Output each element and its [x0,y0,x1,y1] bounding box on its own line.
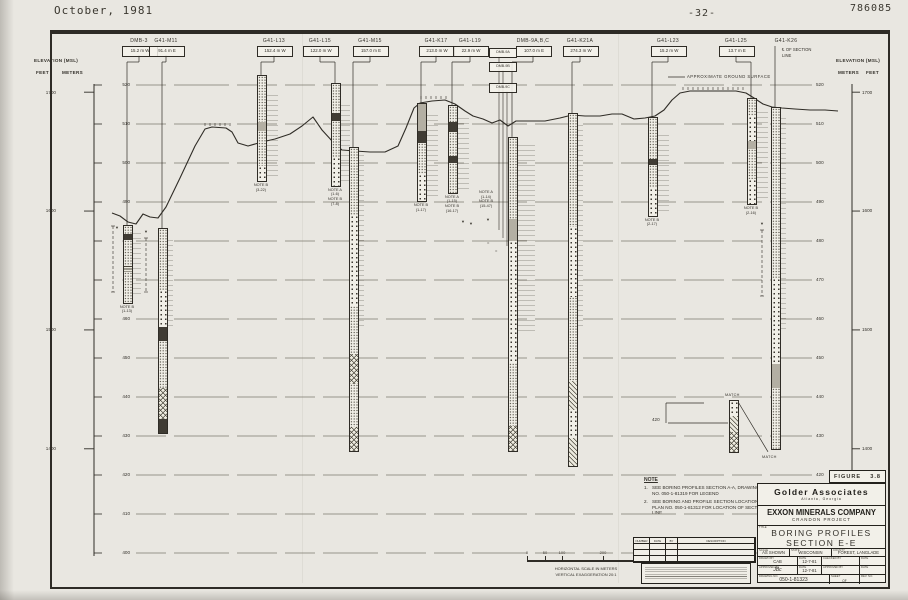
elevation-label-meters-left: 490 [108,199,130,204]
stratum-gy [258,122,266,130]
stratum-st [569,297,577,381]
figure-label: FIGURE [834,474,861,480]
stratum-hh [730,416,738,431]
stratum-dt [748,116,756,141]
elevation-label-meters-left: 500 [108,160,130,165]
stratum-dt [350,215,358,306]
boring-column [508,137,518,452]
centerline-note: ℄ OF SECTIONLINE [782,47,811,58]
water-level-marker: ▼ [469,222,473,226]
stratum-st [258,131,266,167]
elevation-label-meters-left: 410 [108,511,130,516]
boring-column [771,107,781,450]
boring-note: NOTE B(1-13) [105,305,149,314]
stratum-hx [159,388,167,419]
drawing-number-value: 050-1-81323 [758,577,829,583]
elevation-label-meters-left: 400 [108,550,130,555]
stratum-st [124,272,132,303]
boring-column [648,117,658,217]
boring-offset-box: 15.2 m W [651,46,687,57]
stratum-st [748,149,756,178]
stratum-hx [730,432,738,452]
boring-id-label: G41-M11 [136,38,196,44]
boring-annotation-strip [426,115,438,197]
date-value: 12-7-81 [798,568,821,573]
date-label: DATE [861,565,868,569]
elevation-label-feet-right: 1500 [862,327,884,332]
boring-column [747,98,757,205]
boring-column [568,113,578,467]
stratum-st [258,76,266,122]
date-label: DATE [861,556,868,560]
drawing-title-line1: BORING PROFILES [758,528,885,538]
drawing-title-line2: SECTION E-E [758,538,885,548]
match-column [729,400,739,453]
stratum-st [569,114,577,227]
stratum-st [449,163,457,193]
elevation-label-feet-right: 1400 [862,446,884,451]
stratum-st [332,84,340,112]
stratum-dt [418,174,426,201]
stratum-dk [418,131,426,143]
stratum-dt [772,278,780,363]
elevation-label-meters-right: 480 [816,238,838,243]
boring-note: NOTE B(2-16) [729,206,773,215]
client-name: EXXON MINERALS COMPANY [761,508,882,517]
water-level-marker: ▼ [760,222,764,226]
elevation-label-meters-left: 460 [108,316,130,321]
stratum-st [159,229,167,290]
stratum-dk [159,327,167,341]
boring-offset-box: 22.9 m W [453,46,489,57]
boring-annotation-strip [132,233,141,298]
stratum-st [449,106,457,122]
stratum-hh [569,381,577,409]
elevation-label-meters-left: 430 [108,433,130,438]
boring-column [257,75,267,182]
boring-note: NOTE B(2-17) [630,218,674,227]
stratum-dt [569,410,577,438]
stratum-dt [332,157,340,185]
stratum-dt [730,401,738,416]
stratum-gy [418,104,426,131]
figure-number: 3.8 [870,474,881,480]
boring-column [331,83,341,187]
boring-annotation-strip [457,118,469,190]
title-block: FIGURE 3.8 Golder Associates Atlanta, Ge… [757,470,887,583]
boring-offset-box: 107.0 m E [516,46,552,57]
elevation-label-feet-right: 1600 [862,208,884,213]
elevation-label-meters-left: 420 [108,472,130,477]
company-name: Golder Associates [758,487,885,497]
boring-id-label: G41-M15 [340,38,400,44]
elevation-label-feet-right: 1700 [862,90,884,95]
boring-column [448,105,458,194]
elevation-label-meters-right: 520 [816,82,838,87]
stratum-st [772,388,780,449]
stratum-st [159,341,167,388]
stratum-hx [350,427,358,451]
county-value: FOREST, LANGLADE [832,550,885,555]
boring-annotation-strip [517,145,535,335]
state-value: WISCONSIN [790,550,831,555]
boring-note: NOTE A(1-14)NOTE B(15-47) [464,190,508,208]
revision-label: REV. NO. [861,574,873,578]
stratum-dt [569,227,577,297]
stratum-hx [509,426,517,451]
boring-offset-box: 122.0 m W [303,46,339,57]
stratum-gy [748,141,756,149]
elevation-label-meters-left: 440 [108,394,130,399]
checked-label: CHECKED BY [823,556,841,560]
water-level-marker: = [487,241,489,245]
figure-box: FIGURE 3.8 [829,470,886,483]
stratum-st [748,99,756,116]
title-block-main: Golder Associates Atlanta, Georgia EXXON… [757,483,886,583]
boring-column [349,147,359,452]
stratum-dt [748,179,756,204]
boring-note: NOTE B(3-22) [239,183,283,192]
stratum-dt [258,166,266,181]
match-label-bottom: MATCH [762,455,777,459]
drawing-title-row: TITLE BORING PROFILES SECTION E-E [758,525,885,549]
elevation-label-feet-left: 1700 [34,90,56,95]
stratum-st [509,363,517,426]
scanned-drawing-page: October, 1981 -32- 786085 ELEVATION (MSL… [0,0,908,600]
title-label: TITLE [759,525,767,529]
elevation-label-meters-left: 520 [108,82,130,87]
elevation-label-meters-right: 430 [816,433,838,438]
boring-id-label: G41-K26 [756,38,816,44]
elevation-label-meters-right: 490 [816,199,838,204]
ground-surface-label: APPROXIMATE GROUND SURFACE [687,74,771,79]
stratum-st [350,306,358,354]
boring-column [158,228,168,434]
stratum-st [449,132,457,156]
approved-label: APPROVED BY [823,565,843,569]
stratum-st [772,108,780,279]
stratum-st [350,148,358,215]
drawing-number-row: DRAWING NO.050-1-81323 SHEETOF REV. NO. [758,574,885,584]
elevation-label-meters-right: 470 [816,277,838,282]
elevation-label-feet-left: 1400 [34,446,56,451]
proprietary-note-box [641,563,751,584]
elevation-label-feet-left: 1600 [34,208,56,213]
boring-offset-box: 274.3 m W [563,46,599,57]
stratum-st [124,240,132,266]
water-level-marker: ▼ [461,220,465,224]
sheet-of-label: OF [830,579,859,583]
elevation-label-meters-left: 510 [108,121,130,126]
stratum-gy [509,219,517,241]
boring-sub-label: DMB-9C [489,83,517,93]
elevation-label-meters-right: 440 [816,394,838,399]
water-level-marker: ▼ [144,230,148,234]
stratum-dt [509,241,517,363]
micro-print [645,567,747,581]
boring-column [123,225,133,304]
stratum-dk [332,113,340,121]
stratum-dk [449,122,457,132]
boring-annotation-strip [657,135,669,212]
stratum-dk [449,156,457,163]
stratum-dt [159,290,167,327]
stratum-st [332,121,340,158]
boring-sub-label: DMB-9B [489,62,517,72]
stratum-st [350,384,358,426]
boring-id-label: G41-K21A [550,38,610,44]
water-level-marker: ▼ [486,218,490,222]
boring-column [417,103,427,202]
boring-annotation-strip [756,112,768,200]
stratum-gy [772,364,780,388]
company-row: Golder Associates Atlanta, Georgia [758,484,885,506]
stratum-st [418,143,426,174]
sheet-label: SHEET [831,574,840,578]
date-value: 12-7-81 [798,559,821,564]
water-level-marker: = [495,249,497,253]
boring-sub-label: DMB-9A [489,48,517,58]
water-level-marker: ▼ [115,226,119,230]
elevation-label-meters-right: 460 [816,316,838,321]
project-name: CRANDON PROJECT [758,517,885,522]
elevation-label-meters-right: 510 [816,121,838,126]
stratum-st [124,226,132,234]
boring-offset-box: 91.4 m E [149,46,185,57]
scale-value: AS SHOWN [758,550,789,555]
elevation-label-meters-right: 500 [816,160,838,165]
stratum-hx [350,354,358,384]
elevation-label-feet-left: 1500 [34,327,56,332]
match-elevation-label: 420 [652,417,660,422]
match-label-top: MATCH [725,393,740,397]
boring-offset-box: 13.7 m E [719,46,755,57]
client-row: EXXON MINERALS COMPANY CRANDON PROJECT [758,505,885,526]
stratum-st [649,118,657,159]
stratum-hh [569,438,577,466]
elevation-label-meters-right: 450 [816,355,838,360]
company-location: Atlanta, Georgia [758,497,885,501]
drawn-value: CAB [758,559,797,564]
stratum-dk [159,419,167,433]
elevation-label-meters-left: 450 [108,355,130,360]
approved-signature: JBc [758,567,797,573]
stratum-st [649,165,657,188]
boring-offset-box: 157.0 m E [353,46,389,57]
boring-id-label: G41-L19 [440,38,500,44]
revision-table: NUMBER DATE BY DESCRIPTION [633,537,756,563]
boring-offset-box: 213.0 m W [419,46,455,57]
boring-offset-box: 152.4 m W [257,46,293,57]
stratum-st [509,138,517,219]
boring-annotation-strip [266,95,278,176]
stratum-dt [649,188,657,215]
boring-id-label: G41-L23 [638,38,698,44]
